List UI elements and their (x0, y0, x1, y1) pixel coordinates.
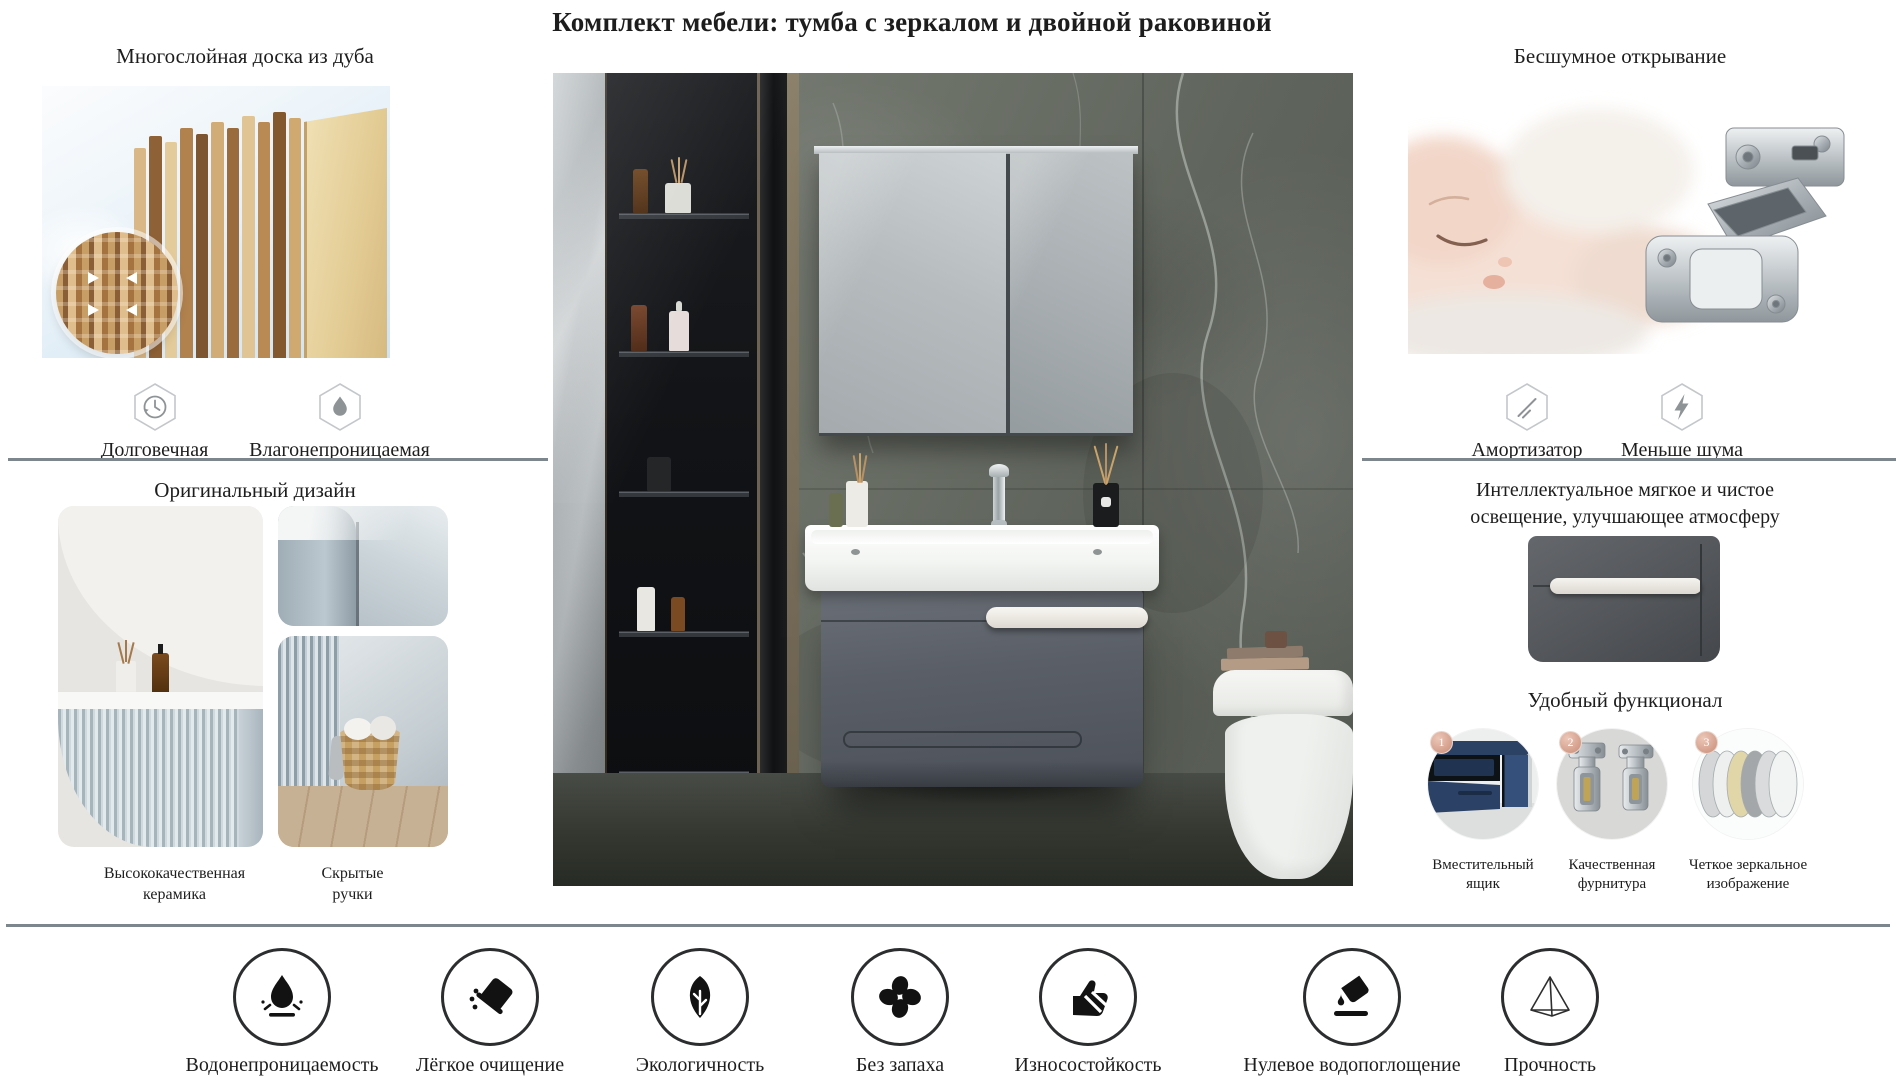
baby-hinge-photo (1408, 86, 1860, 354)
functional-heading: Удобный функционал (1400, 688, 1850, 713)
ceramic-vanity-photo (58, 506, 263, 847)
lightning-icon (1659, 382, 1705, 432)
bottle (633, 169, 648, 213)
box (647, 457, 671, 491)
lighting-heading-line1: Интеллектуальное мягкое и чистое (1380, 477, 1870, 504)
layers-zoom-inset (56, 232, 178, 354)
toilet-bowl (1225, 714, 1353, 879)
lighting-heading-line2: освещение, улучшающее атмосферу (1380, 504, 1870, 531)
feature-easy-clean: Лёгкое очищение (370, 948, 610, 1077)
sink (805, 525, 1159, 591)
toilet-lid (1213, 670, 1353, 716)
tall-shelf-cabinet (605, 73, 759, 886)
divider (8, 458, 548, 461)
vanity-handle (986, 607, 1148, 628)
drawer-handle (1550, 578, 1702, 594)
bottle (671, 597, 685, 631)
caption-hidden-handles: Скрытые ручки (305, 863, 400, 905)
feature-label: Водонепроницаемость (162, 1054, 402, 1077)
basket (338, 730, 402, 790)
feature-damper: Амортизатор (1447, 382, 1607, 462)
bottle (631, 305, 647, 351)
feature-waterproof: Водонепроницаемость (162, 948, 402, 1077)
bathroom-photo (553, 73, 1353, 886)
feature-label: Лёгкое очищение (370, 1054, 610, 1077)
hidden-handles-photo (278, 636, 448, 847)
strength-icon (1501, 948, 1599, 1046)
easy-clean-icon (441, 948, 539, 1046)
wide-oak-panel (304, 108, 387, 358)
arrow-left-icon (126, 272, 137, 284)
bottle (637, 587, 655, 631)
feature-wear-resistance: Износостойкость (968, 948, 1208, 1077)
wear-resistance-icon (1039, 948, 1137, 1046)
bottle (829, 493, 843, 527)
mirror-cabinet (819, 150, 1133, 436)
zero-water-absorption-icon (1303, 948, 1401, 1046)
feature-durable: Долговечная (72, 382, 237, 462)
cup (1265, 631, 1287, 648)
silent-opening-heading: Бесшумное открывание (1400, 44, 1840, 69)
caption-spacious-drawer: Вместительный ящик (1418, 856, 1548, 894)
divider (1362, 458, 1896, 461)
oak-board-heading: Многослойная доска из дуба (30, 44, 460, 69)
caption-ceramic: Высококачественная керамика (82, 863, 267, 905)
arrow-right-icon (88, 304, 99, 316)
pump-bottle (669, 311, 689, 351)
feature-moistureproof: Влагонепроницаемая (237, 382, 442, 462)
waterproof-icon (233, 948, 331, 1046)
product-infographic: Комплект мебели: тумба с зеркалом и двой… (0, 0, 1896, 1080)
vanity-cabinet (821, 591, 1143, 787)
odorless-icon (851, 948, 949, 1046)
badge-3: 3 (1695, 731, 1718, 754)
drawer-front-photo (1528, 536, 1720, 662)
badge-2: 2 (1559, 731, 1582, 754)
diffuser-bottle (846, 481, 868, 527)
badge-1: 1 (1430, 731, 1453, 754)
mirror-door-left (819, 153, 1006, 433)
feature-less-noise: Меньше шума (1597, 382, 1767, 462)
page-title: Комплект мебели: тумба с зеркалом и двой… (0, 7, 1824, 38)
cabinet-corner-photo (278, 506, 448, 626)
caption-clear-mirror: Четкое зеркальное изображение (1663, 856, 1833, 894)
feature-label: Износостойкость (968, 1054, 1208, 1077)
feature-label: Прочность (1430, 1054, 1670, 1077)
divider (6, 924, 1890, 927)
design-heading: Оригинальный дизайн (40, 478, 470, 503)
mirror-door-right (1010, 153, 1133, 433)
arrow-right-icon (88, 272, 99, 284)
oak-board-image (42, 86, 390, 358)
feature-strength: Прочность (1430, 948, 1670, 1077)
book (1221, 657, 1309, 671)
shower-glass (553, 73, 605, 886)
arrow-left-icon (126, 304, 137, 316)
eco-icon (651, 948, 749, 1046)
diffuser-cup (665, 183, 691, 213)
clock-icon (132, 382, 178, 432)
caption-quality-hardware: Качественная фурнитура (1547, 856, 1677, 894)
damper-icon (1504, 382, 1550, 432)
waterdrop-icon (317, 382, 363, 432)
